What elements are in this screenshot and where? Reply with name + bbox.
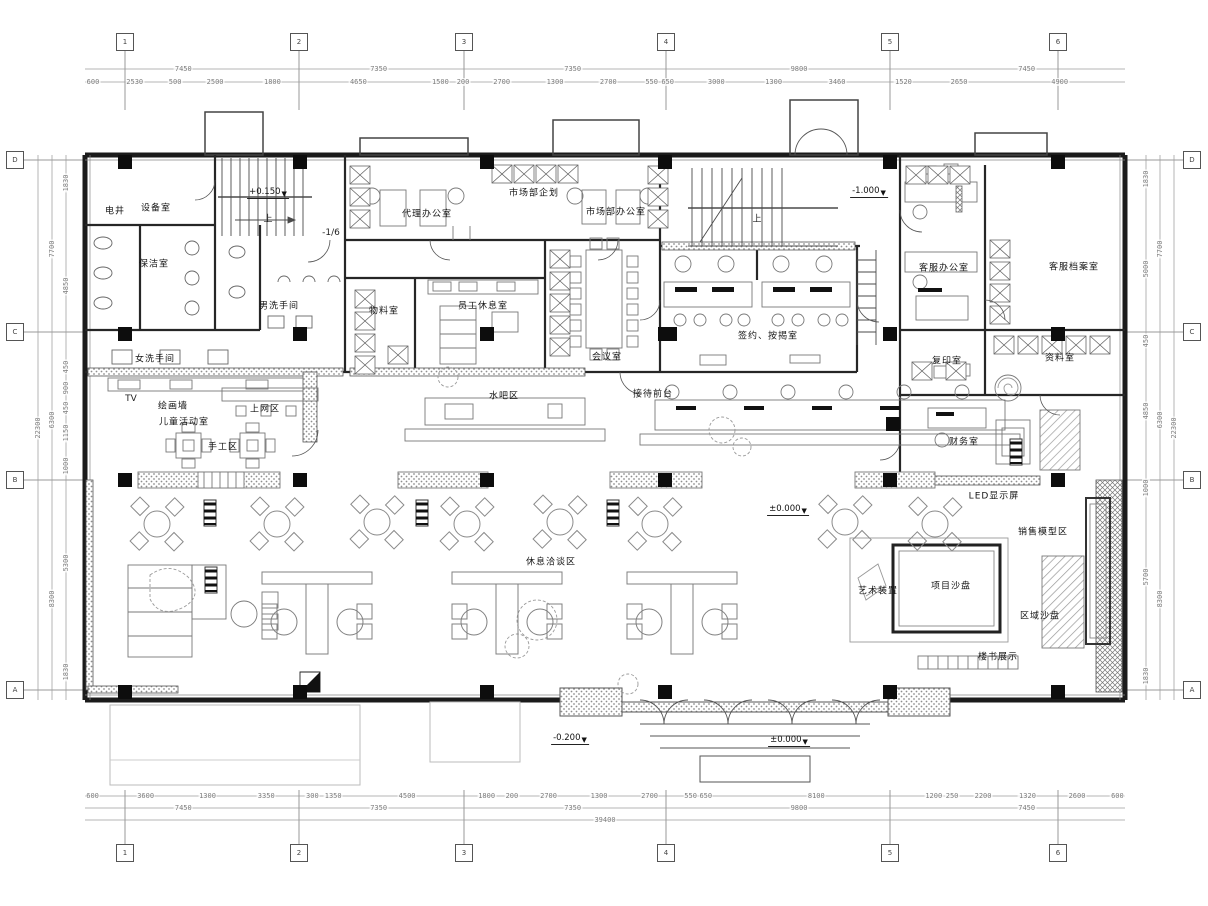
sofa-groups	[262, 572, 737, 654]
floor-plan-canvas: 电井设备室保洁室男洗手间女洗手间绘画墙儿童活动室上网区手工区物料室员工休息室代理…	[0, 0, 1208, 906]
furniture	[94, 164, 1110, 694]
plan-svg	[0, 0, 1208, 906]
stairs	[218, 158, 876, 345]
interior-walls	[85, 155, 1125, 693]
dining-sets	[130, 495, 962, 551]
exterior-walls	[85, 100, 1125, 785]
